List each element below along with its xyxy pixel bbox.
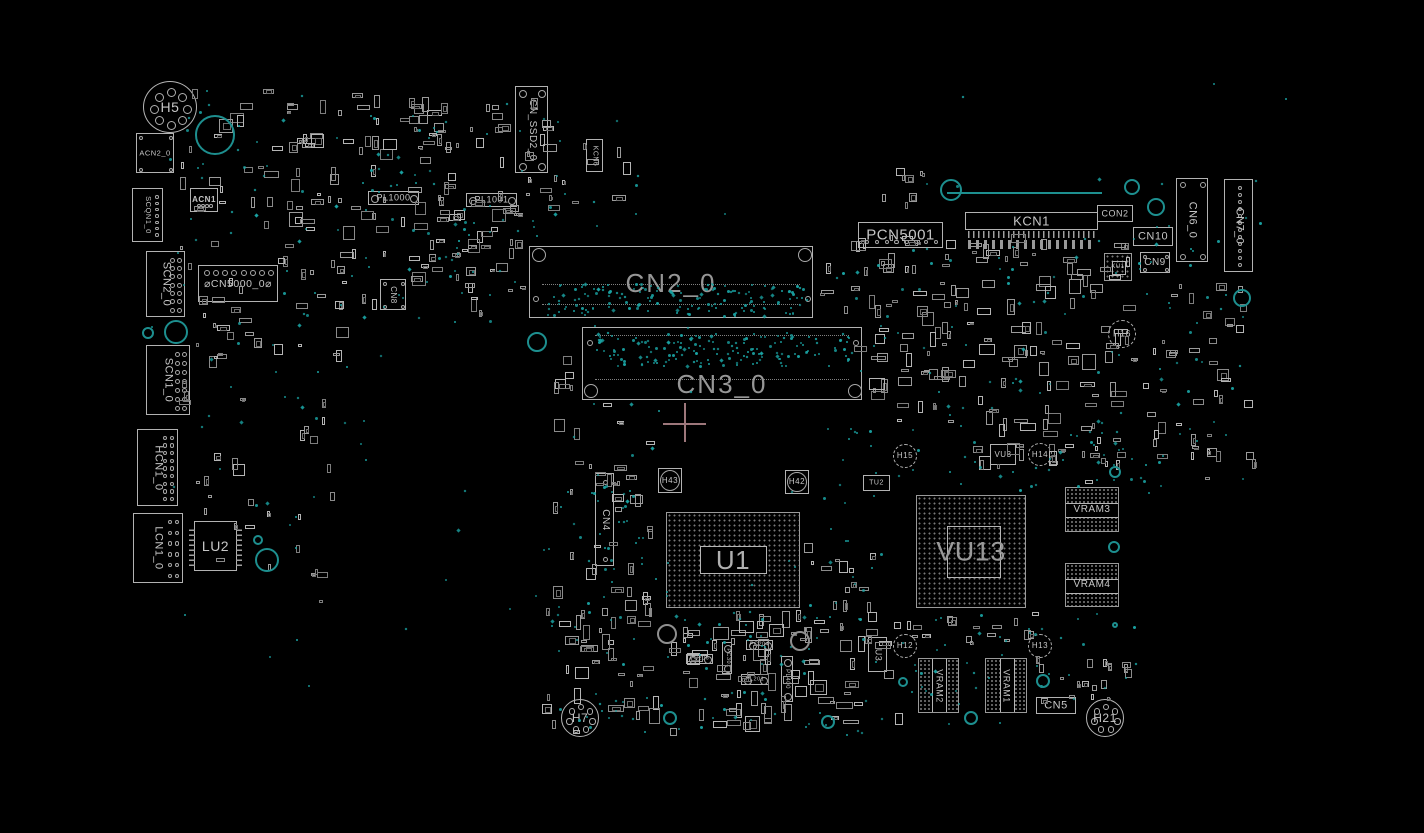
small-component[interactable] xyxy=(559,384,571,389)
small-component[interactable] xyxy=(638,621,651,627)
small-component[interactable] xyxy=(624,698,635,708)
small-component[interactable] xyxy=(408,187,422,193)
small-component[interactable] xyxy=(583,143,586,150)
small-component[interactable] xyxy=(1109,275,1121,280)
small-component[interactable] xyxy=(979,344,995,355)
small-component[interactable] xyxy=(1056,381,1069,389)
small-component[interactable] xyxy=(946,240,956,250)
component-cn7-0[interactable]: CN7_0 xyxy=(1224,179,1253,272)
small-component[interactable] xyxy=(448,173,455,181)
small-component[interactable] xyxy=(574,688,581,704)
small-component[interactable] xyxy=(429,133,437,137)
small-component[interactable] xyxy=(552,720,556,729)
small-component[interactable] xyxy=(199,296,208,305)
small-component[interactable] xyxy=(291,179,300,192)
small-component[interactable] xyxy=(1193,399,1205,404)
small-component[interactable] xyxy=(374,95,380,108)
small-component[interactable] xyxy=(298,514,301,520)
component-vram4[interactable]: VRAM4 xyxy=(1065,563,1119,607)
small-component[interactable] xyxy=(409,116,419,124)
small-component[interactable] xyxy=(866,629,879,637)
small-component[interactable] xyxy=(251,197,256,208)
small-component[interactable] xyxy=(383,139,397,150)
small-component[interactable] xyxy=(738,676,751,682)
small-component[interactable] xyxy=(581,640,588,643)
small-component[interactable] xyxy=(642,596,651,600)
small-component[interactable] xyxy=(1166,350,1177,358)
small-component[interactable] xyxy=(542,120,550,128)
small-component[interactable] xyxy=(1154,430,1158,440)
small-component[interactable] xyxy=(1048,413,1062,424)
small-component[interactable] xyxy=(1036,656,1040,664)
small-component[interactable] xyxy=(409,256,419,262)
small-component[interactable] xyxy=(1052,340,1062,345)
small-component[interactable] xyxy=(272,146,283,151)
small-component[interactable] xyxy=(287,103,294,106)
small-component[interactable] xyxy=(1216,283,1227,292)
small-component[interactable] xyxy=(188,263,191,271)
small-component[interactable] xyxy=(376,226,389,233)
small-component[interactable] xyxy=(818,697,834,704)
small-component[interactable] xyxy=(947,331,951,339)
small-component[interactable] xyxy=(565,372,573,378)
small-component[interactable] xyxy=(1171,294,1177,297)
component-vram2[interactable]: VRAM2 xyxy=(918,658,959,713)
small-component[interactable] xyxy=(376,118,379,125)
small-component[interactable] xyxy=(1082,681,1089,687)
small-component[interactable] xyxy=(437,134,443,146)
small-component[interactable] xyxy=(180,246,183,250)
small-component[interactable] xyxy=(1227,324,1233,327)
small-component[interactable] xyxy=(840,623,844,631)
small-component[interactable] xyxy=(1040,351,1045,354)
small-component[interactable] xyxy=(495,127,503,132)
small-component[interactable] xyxy=(850,658,856,671)
small-component[interactable] xyxy=(1131,358,1137,361)
small-component[interactable] xyxy=(216,558,224,562)
small-component[interactable] xyxy=(1207,449,1210,454)
component-acn2-0[interactable]: ACN2_0 xyxy=(136,133,174,173)
small-component[interactable] xyxy=(432,267,443,272)
small-component[interactable] xyxy=(804,660,820,665)
small-component[interactable] xyxy=(1041,239,1046,251)
small-component[interactable] xyxy=(311,134,324,148)
small-component[interactable] xyxy=(895,713,903,725)
small-component[interactable] xyxy=(500,157,504,167)
small-component[interactable] xyxy=(912,265,916,274)
small-component[interactable] xyxy=(245,525,255,529)
small-component[interactable] xyxy=(836,702,853,709)
small-component[interactable] xyxy=(592,660,601,664)
small-component[interactable] xyxy=(913,291,928,297)
small-component[interactable] xyxy=(542,704,552,715)
small-component[interactable] xyxy=(231,307,241,312)
small-component[interactable] xyxy=(944,302,951,308)
small-component[interactable] xyxy=(441,103,448,114)
small-component[interactable] xyxy=(481,231,492,237)
small-component[interactable] xyxy=(973,626,980,629)
small-component[interactable] xyxy=(612,195,626,201)
small-component[interactable] xyxy=(189,146,192,153)
small-component[interactable] xyxy=(865,636,873,643)
component-h5[interactable]: H5 xyxy=(143,81,197,133)
small-component[interactable] xyxy=(972,251,977,254)
small-component[interactable] xyxy=(337,266,345,274)
small-component[interactable] xyxy=(181,162,184,169)
small-component[interactable] xyxy=(984,338,992,342)
small-component[interactable] xyxy=(849,568,854,574)
small-component[interactable] xyxy=(1106,343,1119,349)
small-component[interactable] xyxy=(617,481,620,486)
small-component[interactable] xyxy=(423,141,435,146)
small-component[interactable] xyxy=(411,104,422,109)
small-component[interactable] xyxy=(992,625,1002,629)
small-component[interactable] xyxy=(1022,322,1031,334)
small-component[interactable] xyxy=(1020,423,1036,431)
small-component[interactable] xyxy=(769,624,784,637)
small-component[interactable] xyxy=(208,495,212,498)
small-component[interactable] xyxy=(630,681,633,687)
small-component[interactable] xyxy=(1014,345,1027,358)
small-component[interactable] xyxy=(858,238,866,244)
small-component[interactable] xyxy=(1001,378,1005,387)
small-component[interactable] xyxy=(437,217,449,222)
small-component[interactable] xyxy=(948,617,957,627)
small-component[interactable] xyxy=(796,610,801,622)
small-component[interactable] xyxy=(1209,338,1217,344)
small-component[interactable] xyxy=(764,718,771,723)
small-component[interactable] xyxy=(1039,664,1044,673)
small-component[interactable] xyxy=(1092,685,1097,691)
small-component[interactable] xyxy=(1114,329,1128,334)
small-component[interactable] xyxy=(669,648,681,653)
small-component[interactable] xyxy=(204,508,207,515)
small-component[interactable] xyxy=(1100,267,1111,272)
small-component[interactable] xyxy=(1095,446,1098,450)
small-component[interactable] xyxy=(884,670,894,679)
small-component[interactable] xyxy=(869,378,885,391)
small-component[interactable] xyxy=(232,458,237,470)
small-component[interactable] xyxy=(580,646,594,652)
small-component[interactable] xyxy=(737,690,741,698)
small-component[interactable] xyxy=(592,564,597,575)
small-component[interactable] xyxy=(492,113,503,119)
small-component[interactable] xyxy=(570,385,573,391)
small-component[interactable] xyxy=(218,353,223,356)
small-component[interactable] xyxy=(1207,434,1211,437)
component-scqn1-0[interactable]: SCQN1_0 xyxy=(132,188,163,242)
small-component[interactable] xyxy=(278,258,285,264)
small-component[interactable] xyxy=(1214,390,1218,396)
small-component[interactable] xyxy=(648,529,653,539)
small-component[interactable] xyxy=(1108,663,1112,671)
small-component[interactable] xyxy=(922,173,925,177)
small-component[interactable] xyxy=(570,489,573,495)
small-component[interactable] xyxy=(1066,343,1080,349)
small-component[interactable] xyxy=(436,239,445,243)
small-component[interactable] xyxy=(854,702,863,706)
small-component[interactable] xyxy=(1122,662,1131,668)
small-component[interactable] xyxy=(970,641,973,646)
small-component[interactable] xyxy=(317,193,321,196)
small-component[interactable] xyxy=(1176,423,1181,426)
small-component[interactable] xyxy=(528,177,531,182)
small-component[interactable] xyxy=(439,197,443,206)
small-component[interactable] xyxy=(311,199,323,205)
small-component[interactable] xyxy=(300,219,315,223)
small-component[interactable] xyxy=(214,356,218,359)
small-component[interactable] xyxy=(967,322,974,325)
small-component[interactable] xyxy=(913,625,923,629)
small-component[interactable] xyxy=(835,559,840,562)
small-component[interactable] xyxy=(811,561,814,565)
small-component[interactable] xyxy=(1045,405,1049,414)
small-component[interactable] xyxy=(204,476,209,486)
small-component[interactable] xyxy=(906,353,912,367)
small-component[interactable] xyxy=(977,308,991,314)
small-component[interactable] xyxy=(1082,451,1085,457)
small-component[interactable] xyxy=(287,201,293,210)
small-component[interactable] xyxy=(905,240,918,246)
small-component[interactable] xyxy=(731,638,736,645)
small-component[interactable] xyxy=(264,221,268,230)
small-component[interactable] xyxy=(921,371,928,375)
small-component[interactable] xyxy=(973,446,982,453)
small-component[interactable] xyxy=(683,638,686,643)
component-cn6-0[interactable]: CN6_0 xyxy=(1176,178,1208,262)
small-component[interactable] xyxy=(611,587,624,593)
small-component[interactable] xyxy=(1162,340,1165,345)
small-component[interactable] xyxy=(638,706,649,711)
small-component[interactable] xyxy=(211,241,219,248)
small-component[interactable] xyxy=(900,344,907,352)
small-component[interactable] xyxy=(942,343,947,346)
small-component[interactable] xyxy=(510,239,513,246)
component-vram3[interactable]: VRAM3 xyxy=(1065,487,1119,532)
small-component[interactable] xyxy=(918,401,924,413)
small-component[interactable] xyxy=(897,403,909,408)
small-component[interactable] xyxy=(982,280,995,287)
small-component[interactable] xyxy=(1179,284,1182,289)
small-component[interactable] xyxy=(306,227,315,231)
small-component[interactable] xyxy=(184,391,188,402)
small-component[interactable] xyxy=(587,159,599,164)
small-component[interactable] xyxy=(1191,452,1194,460)
small-component[interactable] xyxy=(1205,477,1210,480)
small-component[interactable] xyxy=(1085,480,1093,483)
small-component[interactable] xyxy=(1111,401,1124,407)
small-component[interactable] xyxy=(948,420,954,423)
small-component[interactable] xyxy=(927,351,930,355)
small-component[interactable] xyxy=(1092,394,1099,397)
small-component[interactable] xyxy=(509,248,514,259)
small-component[interactable] xyxy=(1041,698,1048,704)
small-component[interactable] xyxy=(338,198,342,203)
component-cn9[interactable]: CN9 xyxy=(1140,252,1170,273)
small-component[interactable] xyxy=(1153,348,1156,355)
small-component[interactable] xyxy=(1236,325,1244,333)
small-component[interactable] xyxy=(917,306,929,317)
small-component[interactable] xyxy=(1005,256,1008,262)
small-component[interactable] xyxy=(267,511,270,517)
small-component[interactable] xyxy=(546,608,550,616)
small-component[interactable] xyxy=(877,353,888,362)
small-component[interactable] xyxy=(372,136,379,151)
small-component[interactable] xyxy=(446,142,451,152)
small-component[interactable] xyxy=(212,297,225,303)
small-component[interactable] xyxy=(429,254,437,261)
component-lcn1-0[interactable]: LCN1_0 xyxy=(133,513,183,583)
small-component[interactable] xyxy=(1009,359,1019,367)
small-component[interactable] xyxy=(572,201,579,204)
small-component[interactable] xyxy=(239,286,243,294)
small-component[interactable] xyxy=(490,269,496,272)
small-component[interactable] xyxy=(531,98,538,110)
small-component[interactable] xyxy=(839,561,847,573)
small-component[interactable] xyxy=(820,629,829,633)
small-component[interactable] xyxy=(333,353,340,356)
small-component[interactable] xyxy=(602,634,609,650)
small-component[interactable] xyxy=(227,332,234,341)
small-component[interactable] xyxy=(304,426,309,434)
small-component[interactable] xyxy=(1014,419,1028,424)
small-component[interactable] xyxy=(1147,412,1157,417)
small-component[interactable] xyxy=(783,676,800,683)
small-component[interactable] xyxy=(343,139,354,144)
small-component[interactable] xyxy=(612,494,625,501)
component-hcn1-0[interactable]: HCN1_0 xyxy=(137,429,178,506)
small-component[interactable] xyxy=(905,175,914,183)
small-component[interactable] xyxy=(508,289,513,292)
small-component[interactable] xyxy=(1091,290,1095,299)
small-component[interactable] xyxy=(319,600,323,603)
small-component[interactable] xyxy=(1110,382,1116,397)
small-component[interactable] xyxy=(573,730,580,733)
component-h42[interactable]: H42 xyxy=(785,470,809,494)
small-component[interactable] xyxy=(845,681,859,687)
component-h43[interactable]: H43 xyxy=(658,468,682,493)
small-component[interactable] xyxy=(964,303,968,312)
component-h21[interactable]: H21 xyxy=(1086,699,1124,737)
small-component[interactable] xyxy=(234,523,237,530)
small-component[interactable] xyxy=(912,635,917,638)
small-component[interactable] xyxy=(526,193,530,196)
small-component[interactable] xyxy=(602,608,608,617)
small-component[interactable] xyxy=(1092,423,1095,429)
small-component[interactable] xyxy=(1125,336,1129,345)
small-component[interactable] xyxy=(1192,446,1199,449)
small-component[interactable] xyxy=(214,453,221,460)
small-component[interactable] xyxy=(419,115,428,124)
component-scn2-0[interactable]: SCN2_0 xyxy=(146,251,185,317)
small-component[interactable] xyxy=(421,264,429,268)
small-component[interactable] xyxy=(687,653,701,664)
small-component[interactable] xyxy=(898,377,912,387)
small-component[interactable] xyxy=(1065,444,1074,448)
small-component[interactable] xyxy=(317,294,326,298)
small-component[interactable] xyxy=(1069,279,1081,295)
small-component[interactable] xyxy=(688,630,701,636)
small-component[interactable] xyxy=(589,464,592,469)
small-component[interactable] xyxy=(854,346,866,352)
small-component[interactable] xyxy=(182,381,187,388)
small-component[interactable] xyxy=(875,642,890,649)
small-component[interactable] xyxy=(933,403,936,410)
small-component[interactable] xyxy=(1143,383,1149,389)
small-component[interactable] xyxy=(217,325,230,331)
small-component[interactable] xyxy=(359,147,362,154)
small-component[interactable] xyxy=(1117,452,1126,458)
small-component[interactable] xyxy=(1097,437,1100,444)
small-component[interactable] xyxy=(609,542,618,546)
small-component[interactable] xyxy=(1244,400,1253,409)
small-component[interactable] xyxy=(864,267,868,276)
small-component[interactable] xyxy=(870,553,876,559)
small-component[interactable] xyxy=(336,327,348,338)
small-component[interactable] xyxy=(997,464,1000,468)
small-component[interactable] xyxy=(328,196,331,202)
small-component[interactable] xyxy=(826,263,831,274)
small-component[interactable] xyxy=(879,259,892,269)
small-component[interactable] xyxy=(757,621,763,629)
small-component[interactable] xyxy=(869,295,875,309)
small-component[interactable] xyxy=(1189,348,1200,353)
small-component[interactable] xyxy=(1032,612,1039,615)
small-component[interactable] xyxy=(1070,298,1075,309)
small-component[interactable] xyxy=(844,692,851,695)
small-component[interactable] xyxy=(1123,305,1136,311)
small-component[interactable] xyxy=(310,270,314,275)
small-component[interactable] xyxy=(180,177,186,190)
small-component[interactable] xyxy=(637,674,643,677)
small-component[interactable] xyxy=(322,417,325,425)
small-component[interactable] xyxy=(840,640,852,652)
small-component[interactable] xyxy=(562,180,565,186)
small-component[interactable] xyxy=(649,708,660,724)
small-component[interactable] xyxy=(414,223,428,229)
small-component[interactable] xyxy=(209,177,221,186)
small-component[interactable] xyxy=(999,424,1005,437)
small-component[interactable] xyxy=(599,628,602,633)
component-h15[interactable]: H15 xyxy=(893,444,917,468)
small-component[interactable] xyxy=(310,436,318,445)
small-component[interactable] xyxy=(905,202,908,209)
small-component[interactable] xyxy=(729,708,737,712)
small-component[interactable] xyxy=(427,110,441,116)
small-component[interactable] xyxy=(1091,694,1094,700)
small-component[interactable] xyxy=(643,666,654,671)
small-component[interactable] xyxy=(254,338,262,348)
small-component[interactable] xyxy=(1068,356,1079,365)
small-component[interactable] xyxy=(1114,243,1126,248)
small-component[interactable] xyxy=(415,202,426,215)
small-component[interactable] xyxy=(196,343,199,347)
small-component[interactable] xyxy=(285,244,294,248)
small-component[interactable] xyxy=(713,627,728,640)
small-component[interactable] xyxy=(479,310,482,316)
small-component[interactable] xyxy=(909,193,917,202)
small-component[interactable] xyxy=(372,299,377,310)
small-component[interactable] xyxy=(239,318,252,323)
small-component[interactable] xyxy=(338,110,342,117)
small-component[interactable] xyxy=(274,344,284,355)
small-component[interactable] xyxy=(969,243,982,247)
small-component[interactable] xyxy=(902,175,905,181)
small-component[interactable] xyxy=(882,194,886,203)
small-component[interactable] xyxy=(444,182,449,195)
small-component[interactable] xyxy=(1101,458,1106,464)
small-component[interactable] xyxy=(901,369,909,373)
